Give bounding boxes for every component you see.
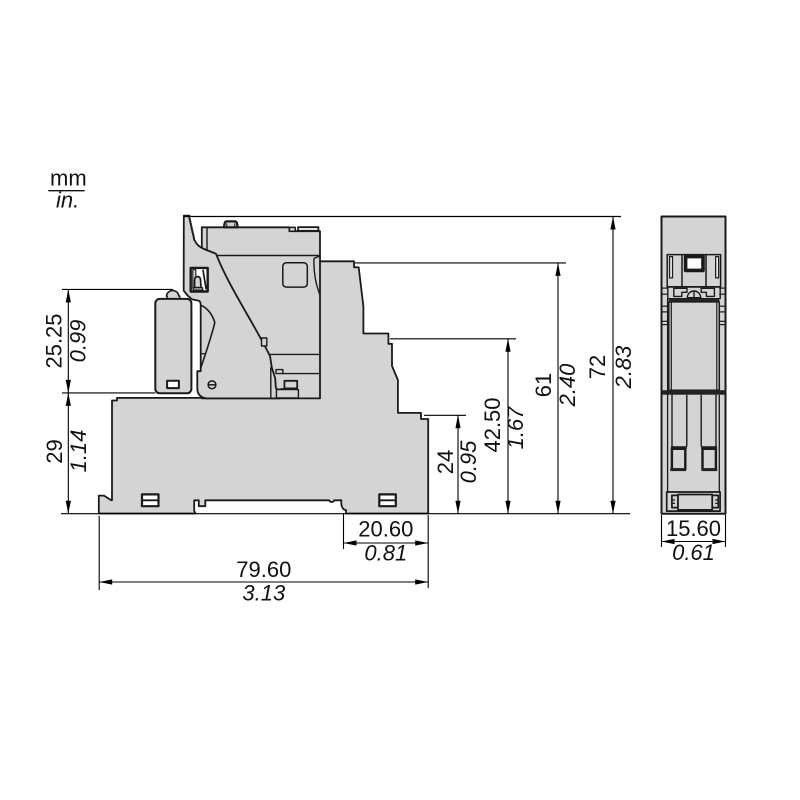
svg-text:0.61: 0.61: [672, 540, 715, 565]
svg-text:3.13: 3.13: [242, 581, 286, 606]
svg-text:29: 29: [42, 439, 67, 463]
svg-text:1.14: 1.14: [66, 430, 91, 473]
svg-text:0.81: 0.81: [364, 541, 407, 566]
svg-text:61: 61: [531, 373, 556, 397]
svg-text:2.83: 2.83: [611, 345, 636, 390]
svg-text:2.40: 2.40: [555, 363, 580, 408]
svg-text:25.25: 25.25: [41, 313, 66, 368]
svg-text:1.67: 1.67: [503, 406, 528, 450]
svg-text:24: 24: [433, 450, 458, 474]
svg-text:in.: in.: [56, 188, 79, 213]
svg-text:0.95: 0.95: [456, 440, 481, 484]
svg-text:15.60: 15.60: [666, 516, 721, 541]
svg-text:72: 72: [585, 355, 610, 379]
svg-text:79.60: 79.60: [236, 557, 291, 582]
svg-text:0.99: 0.99: [65, 320, 90, 363]
svg-text:20.60: 20.60: [358, 517, 413, 542]
svg-text:42.50: 42.50: [480, 397, 505, 452]
